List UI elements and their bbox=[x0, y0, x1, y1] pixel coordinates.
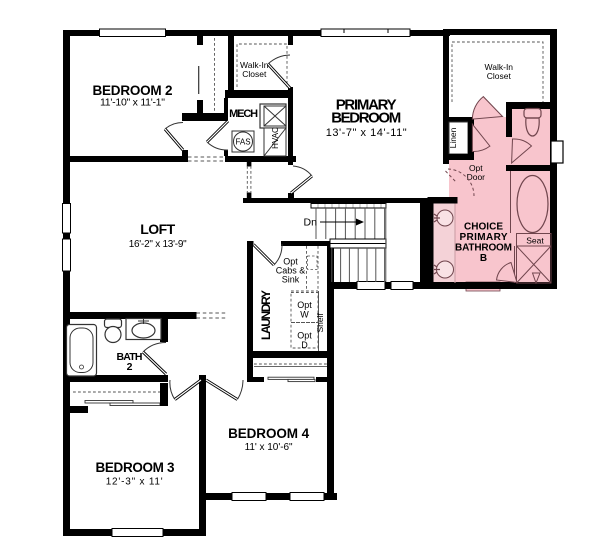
svg-text:11'-10" x 11'-1": 11'-10" x 11'-1" bbox=[100, 97, 165, 109]
svg-text:D: D bbox=[301, 340, 308, 350]
svg-text:BATHROOM: BATHROOM bbox=[455, 243, 512, 254]
svg-text:12'-3" x 11': 12'-3" x 11' bbox=[106, 477, 163, 488]
svg-text:CHOICE: CHOICE bbox=[464, 222, 503, 233]
svg-text:Sink: Sink bbox=[282, 275, 300, 285]
svg-text:BEDROOM 3: BEDROOM 3 bbox=[96, 460, 175, 475]
svg-text:Closet: Closet bbox=[242, 69, 267, 79]
svg-text:LAUNDRY: LAUNDRY bbox=[259, 290, 273, 340]
svg-text:16'-2" x 13'-9": 16'-2" x 13'-9" bbox=[129, 239, 187, 250]
svg-text:BEDROOM: BEDROOM bbox=[331, 110, 401, 127]
svg-text:Opt: Opt bbox=[297, 331, 312, 341]
svg-text:Closet: Closet bbox=[487, 71, 512, 81]
svg-text:BEDROOM 4: BEDROOM 4 bbox=[228, 426, 309, 441]
svg-text:11' x 10'-6": 11' x 10'-6" bbox=[245, 442, 293, 453]
svg-text:PRIMARY: PRIMARY bbox=[460, 232, 508, 243]
svg-text:LOFT: LOFT bbox=[140, 221, 175, 237]
svg-text:B: B bbox=[480, 253, 487, 264]
svg-text:FAS: FAS bbox=[235, 138, 250, 147]
svg-text:MECH: MECH bbox=[229, 108, 258, 120]
svg-text:HVAC: HVAC bbox=[271, 127, 280, 149]
svg-text:Dn: Dn bbox=[304, 217, 318, 229]
svg-text:Seat: Seat bbox=[526, 236, 544, 246]
svg-text:2: 2 bbox=[127, 361, 133, 373]
svg-text:Opt: Opt bbox=[297, 300, 312, 310]
svg-text:13'-7" x 14'-11": 13'-7" x 14'-11" bbox=[326, 127, 407, 139]
svg-text:Shelf: Shelf bbox=[315, 312, 325, 332]
svg-text:Linen: Linen bbox=[448, 127, 458, 148]
svg-text:W: W bbox=[300, 310, 309, 320]
